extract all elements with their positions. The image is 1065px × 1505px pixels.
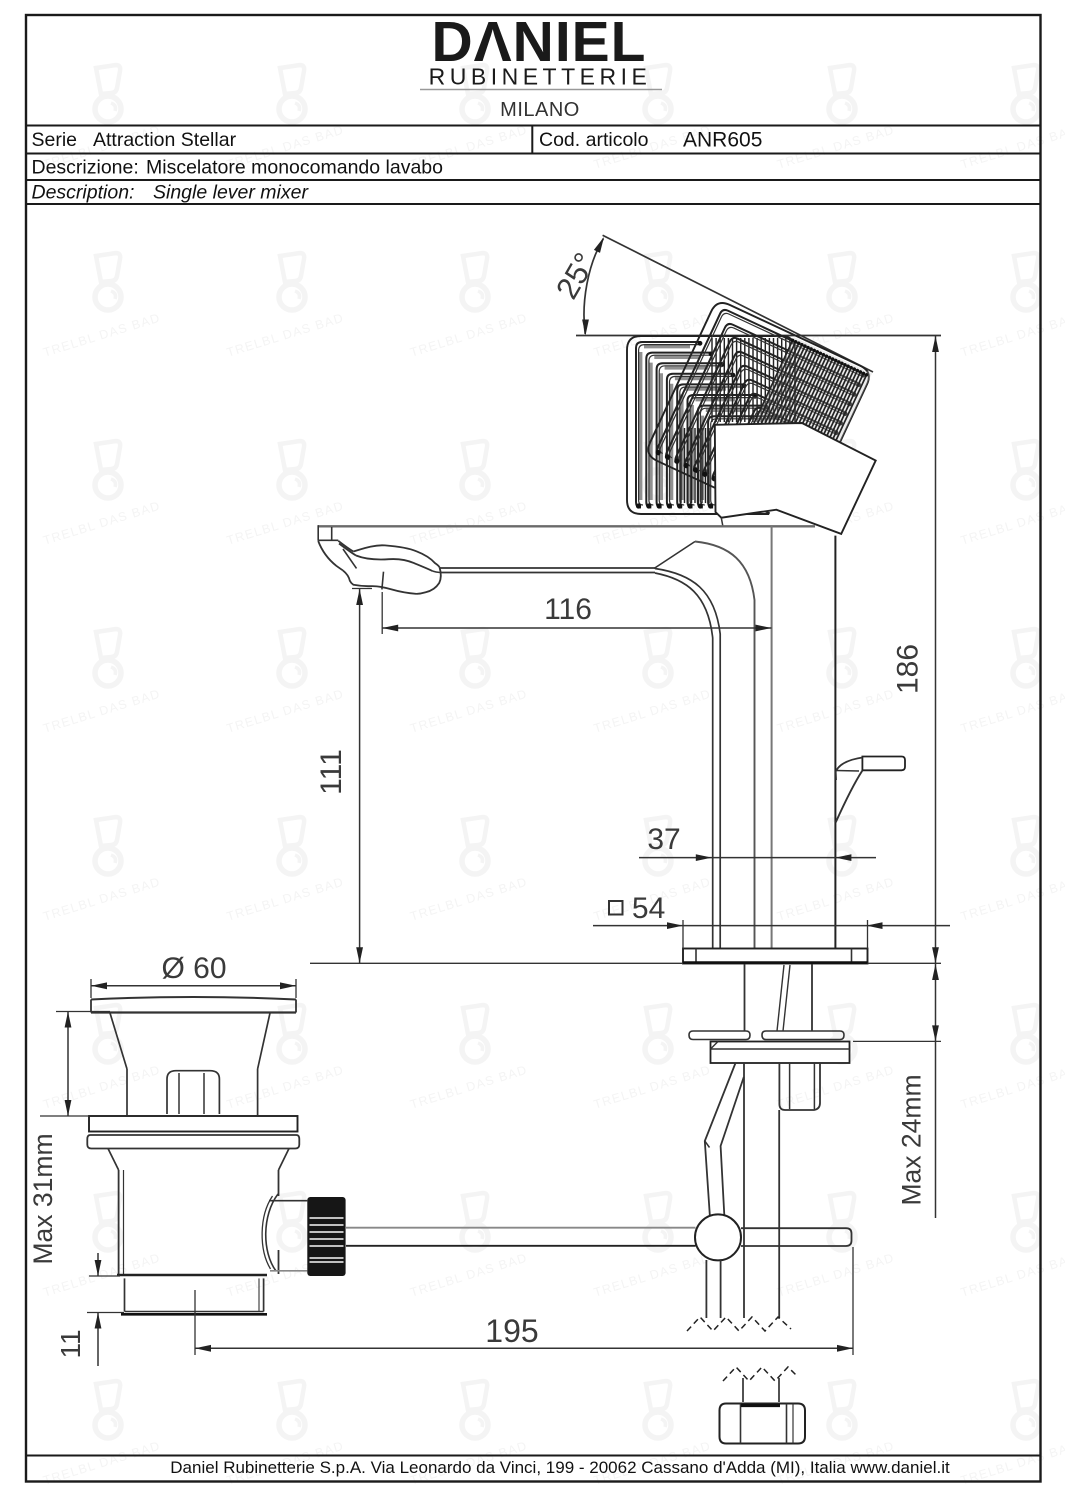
svg-text:Miscelatore monocomando lavabo: Miscelatore monocomando lavabo [146, 157, 443, 179]
svg-text:54: 54 [632, 892, 665, 925]
svg-text:Max 31mm: Max 31mm [28, 1133, 58, 1264]
svg-text:Descrizione:: Descrizione: [32, 157, 139, 179]
svg-text:Attraction Stellar: Attraction Stellar [93, 129, 237, 151]
svg-text:Cod. articolo: Cod. articolo [539, 129, 649, 151]
svg-text:Daniel Rubinetterie S.p.A. Via: Daniel Rubinetterie S.p.A. Via Leonardo … [170, 1458, 950, 1477]
svg-text:Ø 60: Ø 60 [161, 952, 226, 985]
svg-text:Serie: Serie [32, 129, 78, 151]
svg-text:Single lever mixer: Single lever mixer [153, 182, 309, 204]
svg-text:Max 24mm: Max 24mm [897, 1074, 927, 1205]
svg-text:186: 186 [891, 644, 924, 694]
svg-text:MILANO: MILANO [500, 99, 580, 121]
svg-text:11: 11 [55, 1329, 86, 1358]
svg-text:195: 195 [485, 1313, 538, 1349]
svg-text:RUBINETTERIE: RUBINETTERIE [429, 64, 652, 90]
svg-text:116: 116 [544, 593, 592, 626]
svg-text:Description:: Description: [32, 182, 135, 204]
svg-text:111: 111 [315, 749, 348, 795]
svg-text:ANR605: ANR605 [683, 129, 762, 152]
svg-text:37: 37 [647, 823, 680, 856]
